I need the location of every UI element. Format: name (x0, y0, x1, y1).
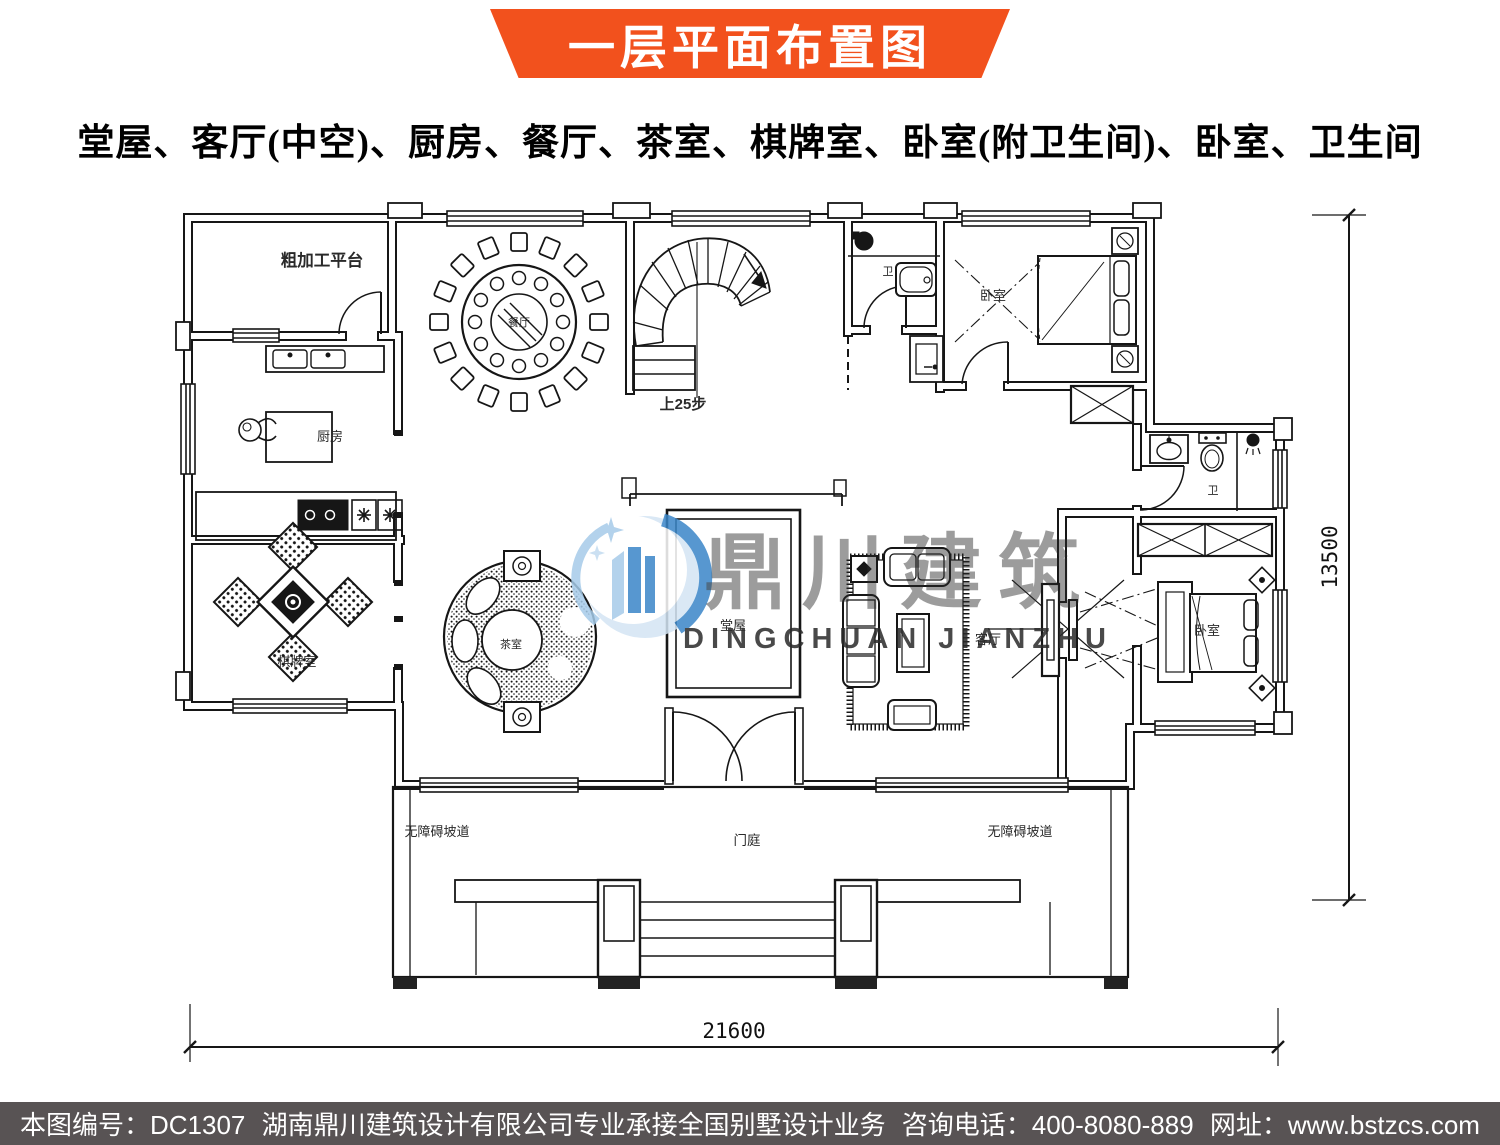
tea-side-table (504, 702, 540, 732)
kitchen-fixtures (196, 346, 402, 540)
bathtub (896, 263, 936, 296)
tea-side-table (504, 551, 540, 581)
toilet (1199, 433, 1226, 471)
window (876, 778, 1068, 792)
column-feet (393, 977, 1128, 989)
entry-steps (640, 902, 835, 956)
nightstand (1112, 228, 1138, 254)
label-ramp-right: 无障碍坡道 (987, 824, 1052, 839)
room-list-subtitle: 堂屋、客厅(中空)、厨房、餐厅、茶室、棋牌室、卧室(附卫生间)、卧室、卫生间 (0, 112, 1500, 166)
company-line: 湖南鼎川建筑设计有限公司专业承接全国别墅设计业务 (262, 1105, 886, 1142)
wardrobe (1138, 524, 1272, 556)
watermark-logo-icon (576, 516, 706, 638)
entrance-gap (664, 779, 804, 792)
spiral-staircase (633, 238, 770, 398)
dim-13500: 13500 (1318, 525, 1342, 588)
shower-head (1246, 434, 1260, 455)
label-tea: 茶室 (500, 637, 522, 651)
nightstand (1112, 346, 1138, 372)
label-rough-platform: 粗加工平台 (281, 250, 364, 270)
main-entrance-door (665, 708, 803, 784)
closets (1071, 386, 1272, 556)
window (420, 778, 578, 792)
label-kitchen: 厨房 (317, 429, 343, 444)
dim-21600: 21600 (702, 1019, 765, 1043)
door-bath-right (1140, 466, 1184, 510)
title-banner: 一层平面布置图 (490, 9, 1010, 78)
bedroom-right-furniture (1085, 567, 1275, 700)
label-ramp-left: 无障碍坡道 (404, 824, 469, 839)
page: 一层平面布置图 堂屋、客厅(中空)、厨房、餐厅、茶室、棋牌室、卧室(附卫生间)、… (0, 0, 1500, 1145)
label-stairs: 上25步 (660, 396, 707, 413)
phone: 咨询电话：400-8080-889 (902, 1105, 1194, 1142)
person-icon (239, 419, 276, 441)
info-bar: 本图编号：DC1307 湖南鼎川建筑设计有限公司专业承接全国别墅设计业务 咨询电… (0, 1102, 1500, 1145)
step-pedestal (598, 880, 640, 977)
watermark: 鼎川建筑 DINGCHUAN JIANZHU (576, 516, 1113, 655)
label-bedroom-top: 卧室 (980, 288, 1006, 303)
sink (1150, 435, 1188, 463)
step-pedestal (835, 880, 877, 977)
window (233, 699, 347, 713)
window (672, 211, 810, 226)
closet (1071, 386, 1133, 423)
window (447, 211, 583, 226)
bed (1038, 256, 1137, 344)
burner (352, 500, 376, 530)
label-bedroom-right: 卧室 (1194, 623, 1220, 638)
window (962, 211, 1090, 226)
watermark-cn: 鼎川建筑 (704, 528, 1096, 619)
tv-bench (888, 700, 936, 730)
dimension-width: 21600 (184, 1004, 1284, 1066)
label-bath-right: 卫 (1208, 485, 1219, 497)
label-dining: 餐厅 (508, 315, 530, 329)
watermark-en: DINGCHUAN JIANZHU (683, 623, 1113, 655)
label-foyer: 门庭 (734, 832, 762, 848)
laundry-closet (910, 336, 943, 382)
window (181, 384, 195, 474)
page-title: 一层平面布置图 (568, 9, 932, 78)
floor-plan: 粗加工平台 厨房 餐厅 棋牌室 茶室 堂屋 客厅 卧室 卧室 卫 卫 上25步 … (150, 190, 1450, 1070)
serving-hatch (233, 329, 279, 342)
window (1155, 721, 1255, 735)
drawing-number: 本图编号：DC1307 (20, 1105, 245, 1142)
dresser (1158, 582, 1192, 682)
door-bedroom-top (962, 342, 1008, 384)
window (1273, 590, 1287, 682)
bath-top-fixtures (848, 232, 943, 382)
website: 网址：www.bstzcs.com (1210, 1105, 1480, 1142)
label-chess: 棋牌室 (277, 654, 316, 669)
dimension-height: 13500 (1312, 209, 1366, 906)
porch (393, 787, 1128, 989)
window (1273, 450, 1287, 508)
floor-plan-canvas: 粗加工平台 厨房 餐厅 棋牌室 茶室 堂屋 客厅 卧室 卧室 卫 卫 上25步 … (150, 190, 1450, 1070)
label-bath-top: 卫 (883, 266, 894, 278)
door-rough-platform (339, 292, 381, 334)
bath-right-fixtures (1150, 432, 1260, 511)
